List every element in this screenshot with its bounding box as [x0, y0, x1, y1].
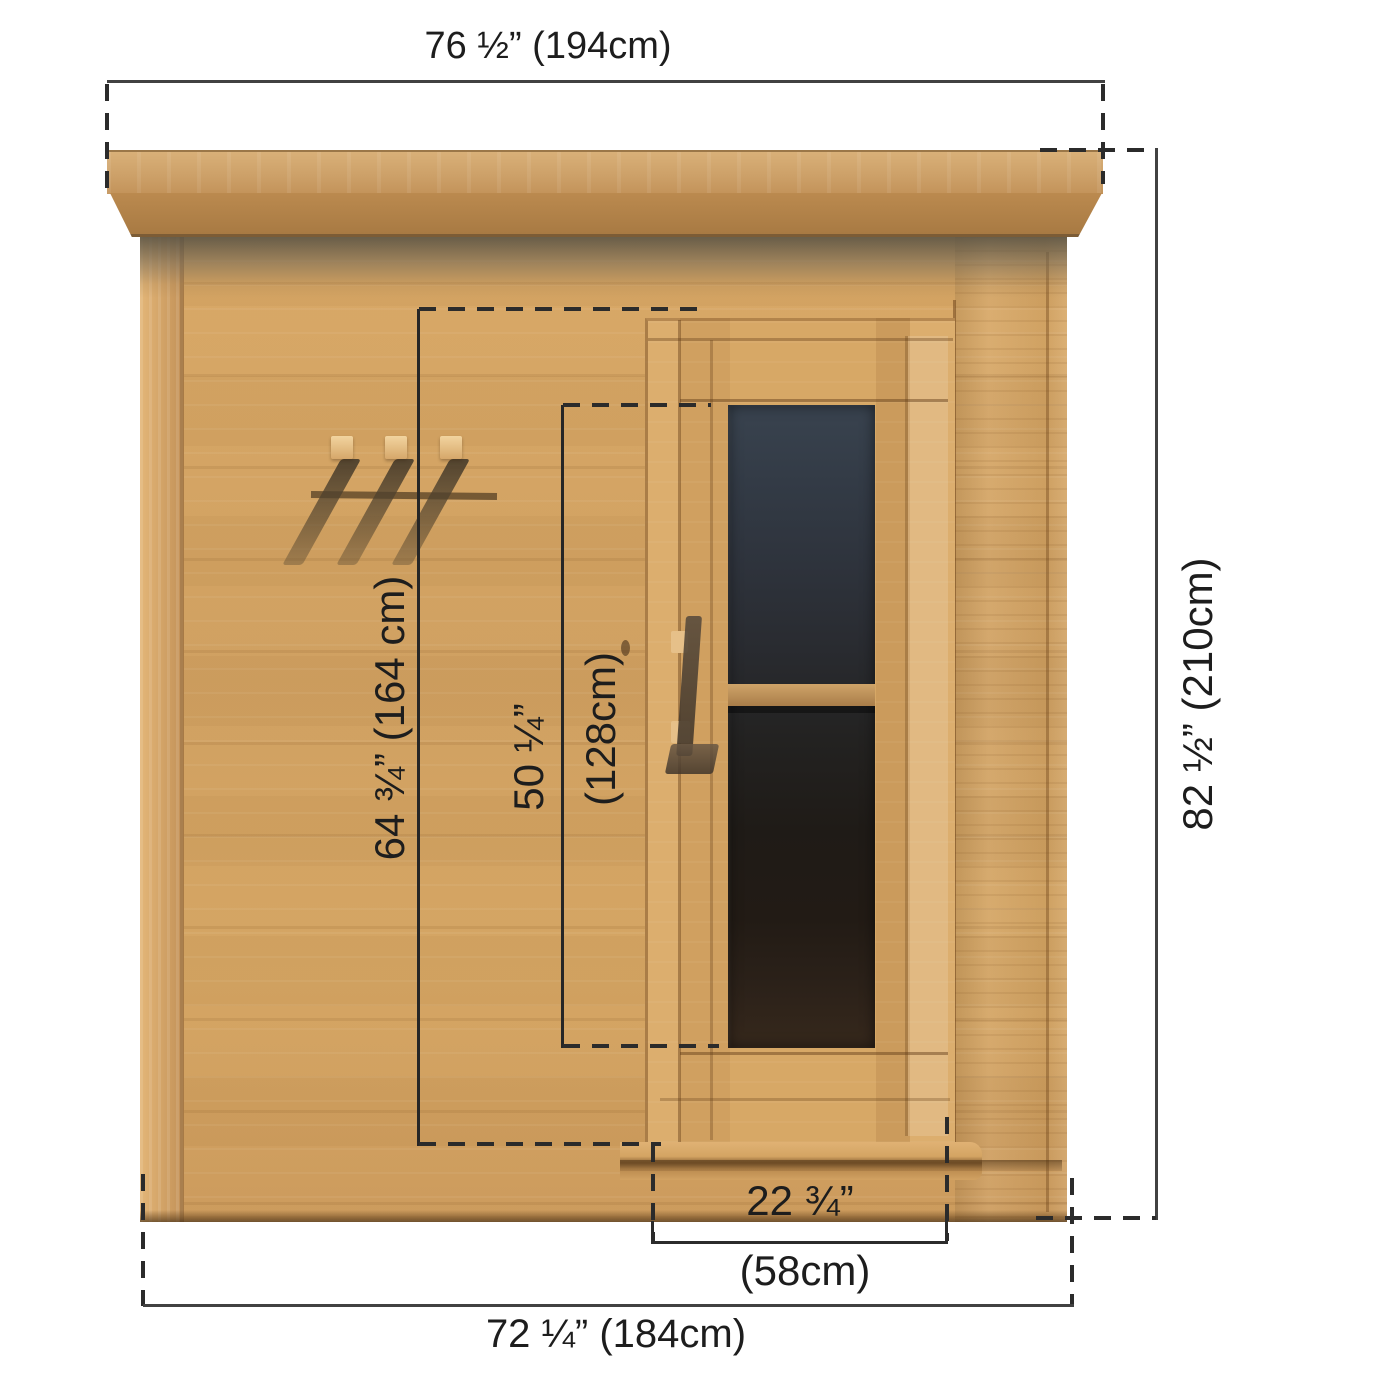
dim-wall-height-dash-bottom — [419, 1142, 661, 1146]
bench-shadow — [728, 706, 875, 713]
dim-wall-height-line — [417, 309, 420, 1146]
dim-top-extension-right — [1101, 84, 1105, 184]
dim-glass-height-cm-label: (128cm) — [578, 569, 624, 889]
door-handle-base — [665, 744, 719, 774]
right-panel-groove — [1046, 252, 1049, 1212]
dim-top-width-line — [107, 80, 1105, 83]
sauna-dimension-diagram: 76 ½” (194cm) 82 ½” (210cm) 72 ¼” (184cm… — [0, 0, 1400, 1400]
dim-height-extension-bottom — [1036, 1216, 1156, 1220]
dim-glass-height-inches-label: 50 ¼” — [506, 597, 552, 917]
dim-base-extension-left — [141, 1174, 145, 1306]
dim-glass-height-dash-bottom — [563, 1044, 719, 1048]
dim-door-width-inches-label: 22 ¾” — [648, 1178, 952, 1224]
door-groove — [680, 399, 948, 402]
sill-shadow-line — [620, 1160, 1062, 1171]
dim-height-line — [1155, 148, 1158, 1220]
dim-top-width-label: 76 ½” (194cm) — [98, 26, 998, 68]
dim-overall-height-label: 82 ½” (210cm) — [1176, 524, 1220, 864]
dim-wall-height-dash-top — [419, 307, 709, 311]
roof-fascia — [110, 193, 1102, 237]
dim-glass-height-dash-top — [563, 403, 711, 407]
dim-door-width-line — [651, 1241, 948, 1244]
dim-door-width-cm-label: (58cm) — [650, 1248, 960, 1294]
left-corner-trim — [140, 236, 184, 1222]
dim-glass-height-line — [561, 405, 564, 1048]
dim-base-width-line — [143, 1304, 1074, 1307]
dim-wall-height-label: 64 ¾” (164 cm) — [367, 468, 413, 968]
dim-base-width-label: 72 ¼” (184cm) — [316, 1312, 916, 1356]
dim-base-extension-right — [1070, 1178, 1074, 1306]
dim-door-width-tick — [651, 1221, 654, 1244]
dim-height-extension-top — [1040, 148, 1157, 152]
roof-underside-shadow — [140, 236, 1067, 298]
dim-door-width-tick — [945, 1221, 948, 1244]
roof-top-plank — [107, 150, 1103, 194]
dim-top-extension-left — [105, 84, 109, 196]
door-glass-window — [728, 405, 875, 1048]
coat-hook-peg — [331, 436, 353, 459]
door-groove — [710, 340, 713, 1140]
door-groove — [680, 1052, 948, 1055]
coat-hook-peg — [385, 436, 407, 459]
door-groove — [648, 338, 953, 341]
coat-hook-peg — [440, 436, 462, 459]
door-stile-highlight — [908, 336, 948, 1136]
right-corner-panel — [955, 236, 1067, 1222]
door-groove — [660, 1098, 950, 1101]
interior-bench-through-glass — [728, 684, 875, 706]
